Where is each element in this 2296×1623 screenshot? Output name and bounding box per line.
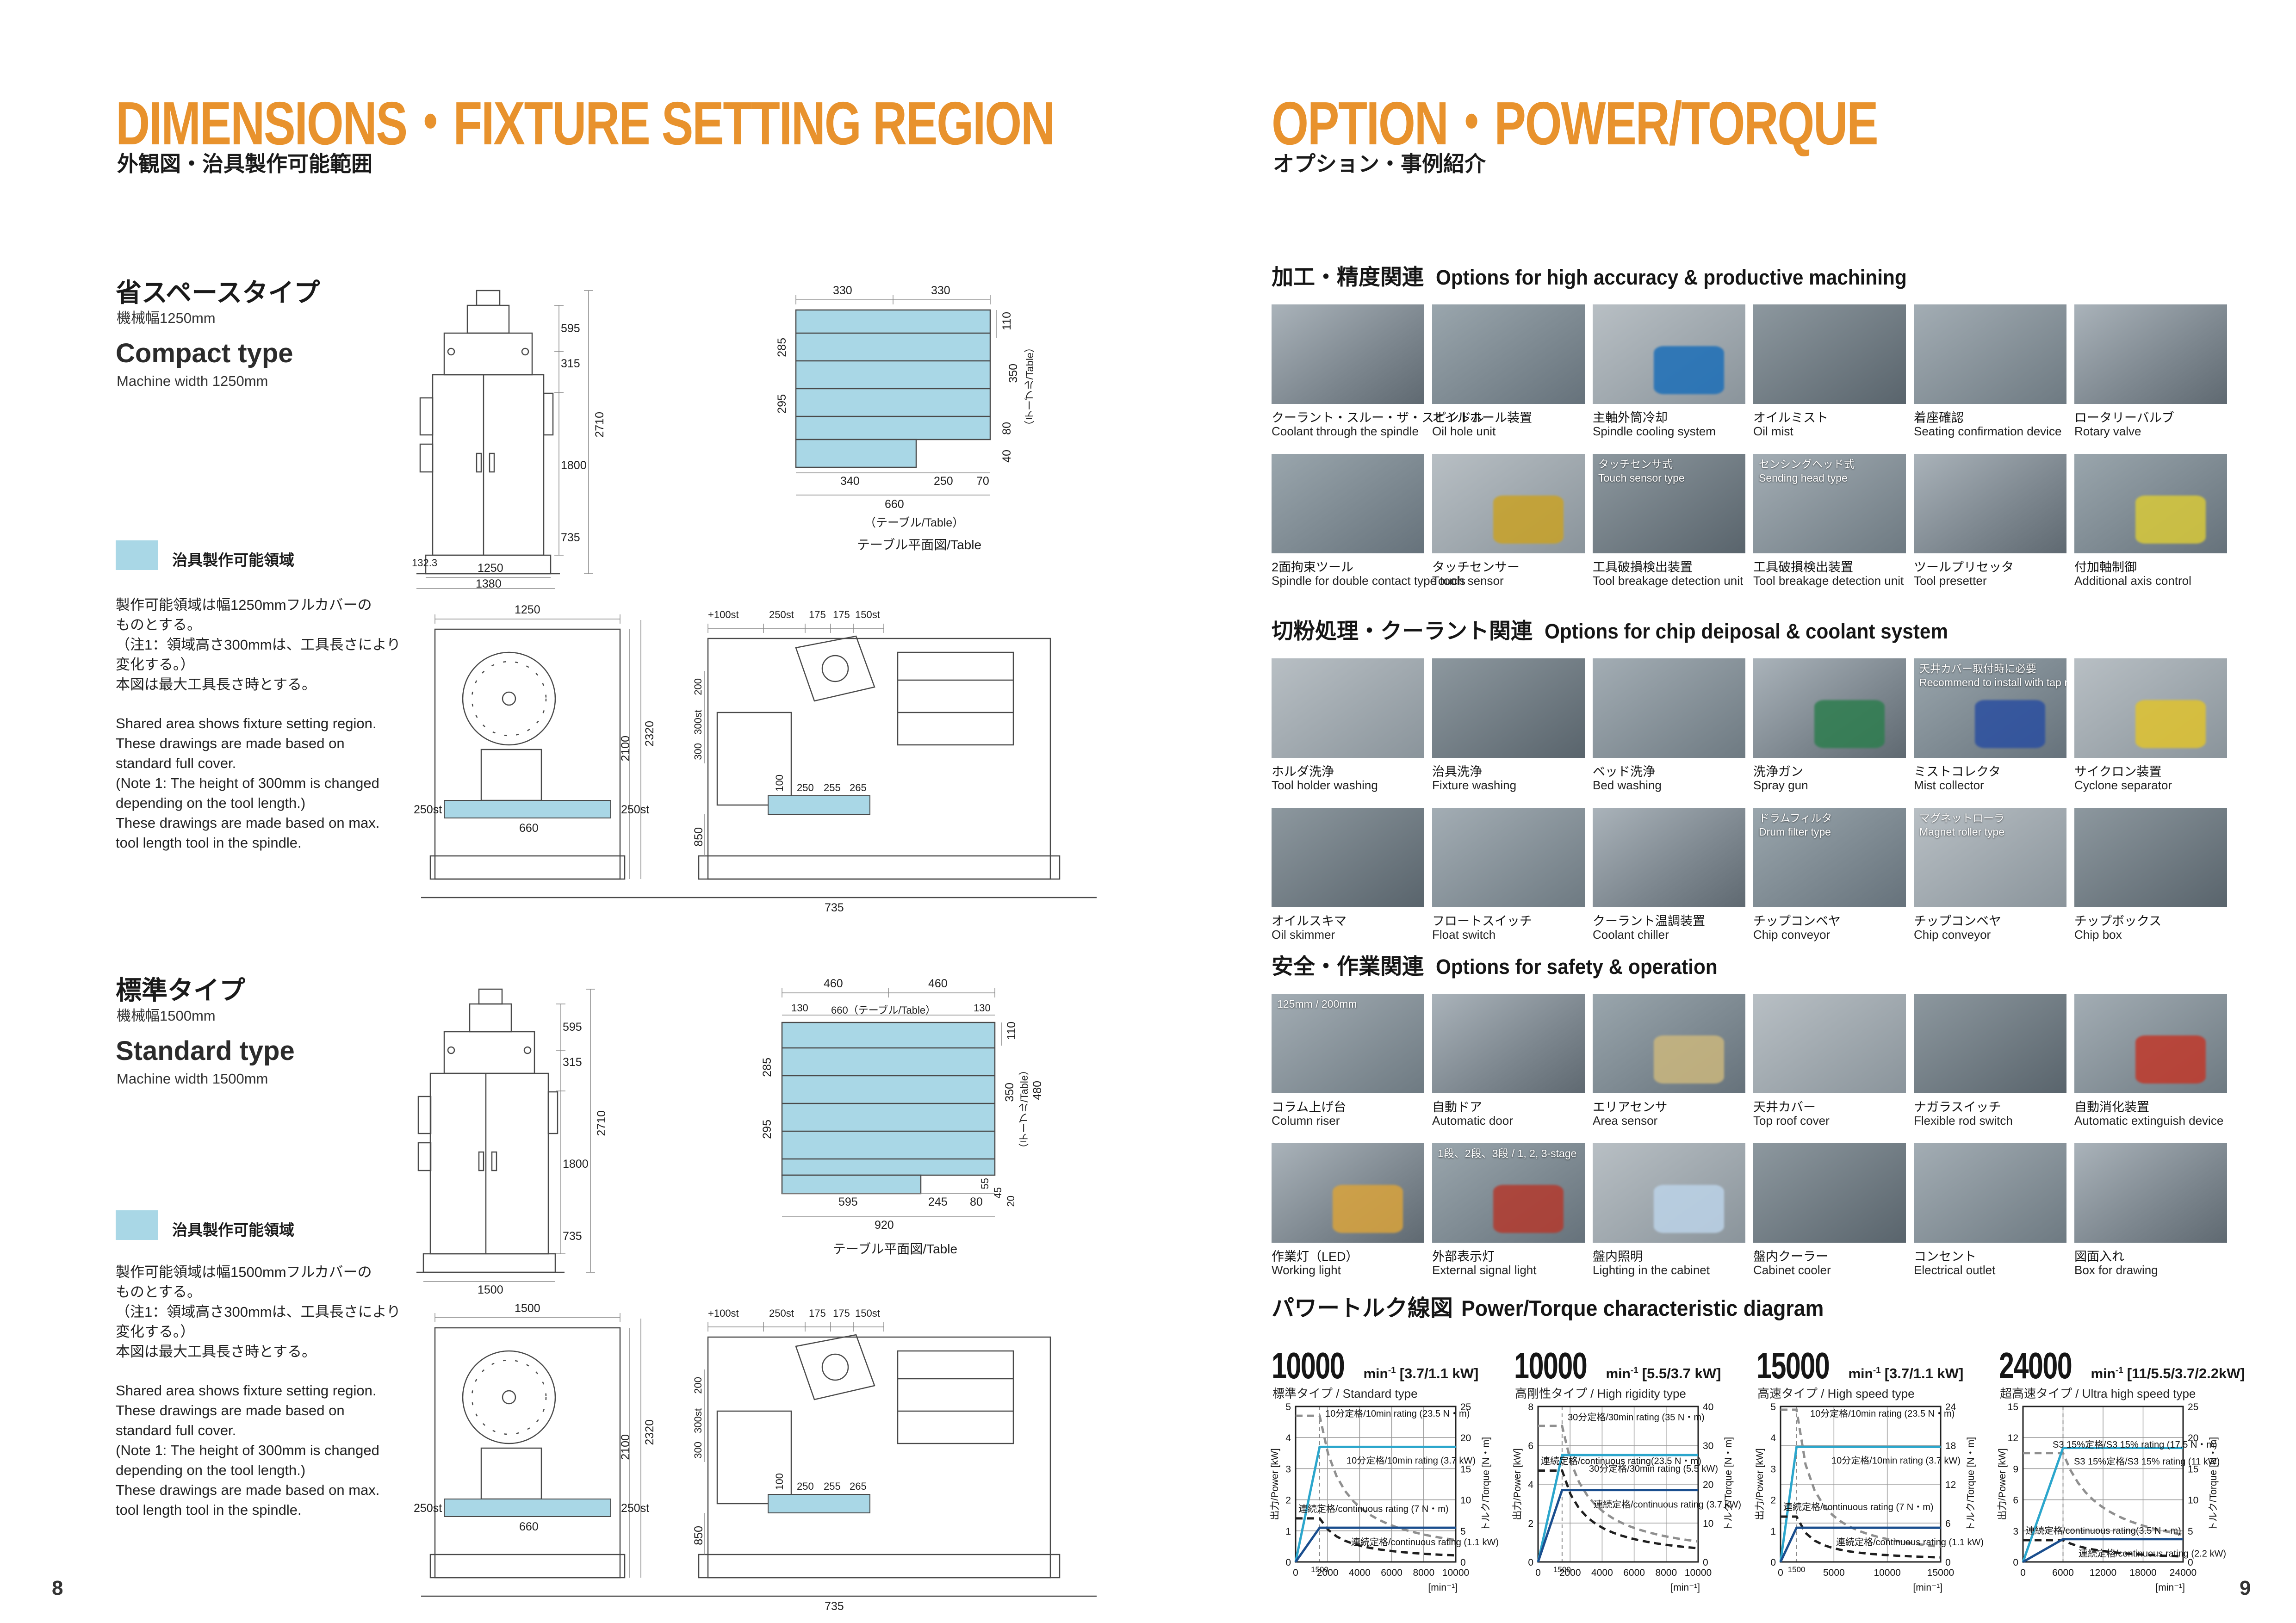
option-caption-jp: コンセント	[1914, 1246, 2066, 1264]
svg-text:5000: 5000	[1823, 1567, 1845, 1578]
photo-accent	[1493, 496, 1564, 543]
option-caption-jp: チップコンベヤ	[1753, 911, 1906, 929]
chart-plot: 30分定格/30min rating (35 N・m)30分定格/30min r…	[1514, 1400, 1748, 1599]
option-photo	[1272, 1143, 1424, 1243]
option-caption-en: Electrical outlet	[1914, 1263, 2066, 1277]
fixture-region-swatch	[116, 540, 158, 570]
svg-text:24: 24	[1945, 1402, 1956, 1412]
svg-text:連続定格/continuous rating(3.5 N・m: 連続定格/continuous rating(3.5 N・m)	[2026, 1525, 2181, 1536]
svg-text:2: 2	[1528, 1518, 1533, 1529]
dim-label: （テーブル/Table）	[1017, 1065, 1032, 1153]
option-caption-en: Tool presetter	[1914, 574, 2066, 588]
chart-plot: 10分定格/10min rating (23.5 N・m)10分定格/10min…	[1272, 1400, 1505, 1599]
svg-text:0: 0	[1528, 1557, 1533, 1568]
option-photo	[1914, 1143, 2066, 1243]
left-page-subtitle: 外観図・治具製作可能範囲	[117, 147, 372, 178]
option-caption-en: Tool holder washing	[1272, 778, 1424, 793]
dim-label: 735	[825, 901, 844, 915]
option-photo	[1914, 454, 2066, 553]
svg-text:出力/Power [kW]: 出力/Power [kW]	[1997, 1448, 2008, 1520]
option-caption-jp: エリアセンサ	[1593, 1097, 1745, 1115]
dim-label: 250	[934, 475, 953, 488]
option-caption-jp: 治具洗浄	[1432, 762, 1585, 780]
svg-text:3: 3	[2013, 1526, 2018, 1537]
option-photo	[1914, 304, 2066, 404]
option-photo	[1593, 658, 1745, 758]
dim-label: 250st	[414, 1502, 442, 1515]
option-photo	[1593, 304, 1745, 404]
dim-label: 460	[928, 977, 948, 991]
option-caption-jp: 洗浄ガン	[1753, 762, 1906, 780]
option-caption-jp: 自動消化装置	[2074, 1097, 2227, 1115]
dim-label: +100st	[708, 609, 739, 621]
dim-label: 150st	[855, 1307, 880, 1319]
svg-text:25: 25	[2188, 1402, 2198, 1412]
dim-label: 175	[809, 609, 826, 621]
svg-text:0: 0	[2188, 1557, 2193, 1568]
option-caption-en: Lighting in the cabinet	[1593, 1263, 1745, 1277]
dim-label: 2320	[643, 721, 657, 747]
option-caption-jp: オイルホール装置	[1432, 408, 1585, 426]
option-caption-jp: ツールプリセッタ	[1914, 557, 2066, 575]
dim-label: 132.3	[412, 557, 437, 569]
fixture-region-legend-label: 治具製作可能領域	[172, 1218, 294, 1240]
svg-text:30: 30	[1703, 1441, 1713, 1451]
svg-text:10000: 10000	[1442, 1567, 1469, 1578]
option-photo	[1593, 994, 1745, 1093]
dim-label: 175	[833, 609, 850, 621]
catalog-spread: { "colors":{"accent":"#E8922D","fixture_…	[0, 0, 2296, 1623]
svg-text:連続定格/continuous rating (7 N・m): 連続定格/continuous rating (7 N・m)	[1298, 1504, 1449, 1514]
dim-label: 330	[833, 284, 852, 297]
svg-text:10000: 10000	[1685, 1567, 1712, 1578]
option-caption-jp: 天井カバー	[1753, 1097, 1906, 1115]
svg-text:10分定格/10min rating (23.5 N・m): 10分定格/10min rating (23.5 N・m)	[1810, 1408, 1955, 1419]
option-caption-jp: オイルミスト	[1753, 408, 1906, 426]
svg-text:0: 0	[1770, 1557, 1776, 1568]
svg-text:10: 10	[1460, 1495, 1471, 1506]
dim-label: 660（テーブル/Table）	[831, 1002, 936, 1017]
svg-text:6000: 6000	[2052, 1567, 2074, 1578]
dim-label: 350	[1007, 364, 1020, 383]
dim-label: 1800	[563, 1158, 589, 1171]
svg-text:15: 15	[1460, 1464, 1471, 1474]
photo-overlay-label: タッチセンサ式Touch sensor type	[1598, 458, 1685, 485]
option-caption-en: Cabinet cooler	[1753, 1263, 1906, 1277]
dim-label: 250st	[621, 803, 649, 817]
option-section-header: 切粉処理・クーラント関連Options for chip deiposal & …	[1272, 613, 1974, 645]
svg-text:0: 0	[2013, 1557, 2018, 1568]
photo-overlay-label: 天井カバー取付時に必要Recommend to install with tap…	[1919, 662, 2066, 690]
svg-text:30分定格/30min rating (35 N・m): 30分定格/30min rating (35 N・m)	[1568, 1412, 1705, 1423]
option-caption-jp: 盤内照明	[1593, 1246, 1745, 1264]
photo-overlay-label: マグネットローラMagnet roller type	[1919, 811, 2004, 839]
option-photo	[2074, 304, 2227, 404]
dim-label: 920	[875, 1219, 894, 1232]
photo-accent	[1814, 700, 1885, 748]
chart-plot: 10分定格/10min rating (23.5 N・m)10分定格/10min…	[1756, 1400, 1990, 1599]
compact-title-jp: 省スペースタイプ	[116, 272, 320, 310]
dim-label: 80	[970, 1196, 983, 1209]
svg-text:15: 15	[2008, 1402, 2018, 1412]
standard-side-view-drawing: 1500 250st 660 250st 2320 2100 +100st 25…	[412, 1295, 1106, 1619]
photo-accent	[1654, 1185, 1724, 1233]
svg-text:2000: 2000	[1317, 1567, 1339, 1578]
svg-text:出力/Power [kW]: 出力/Power [kW]	[1270, 1448, 1280, 1520]
option-section-title-jp: 切粉処理・クーラント関連	[1272, 619, 1533, 643]
svg-text:24000: 24000	[2170, 1567, 2197, 1578]
option-caption-en: Seating confirmation device	[1914, 424, 2066, 439]
power-torque-title-jp: パワートルク線図	[1272, 1296, 1453, 1321]
option-photo	[1272, 658, 1424, 758]
option-caption-en: Coolant chiller	[1593, 928, 1745, 942]
svg-text:2000: 2000	[1559, 1567, 1581, 1578]
standard-notes-en: Shared area shows fixture setting region…	[116, 1381, 379, 1520]
table-plan-caption: テーブル平面図/Table	[857, 535, 981, 553]
dim-label: 300st	[692, 710, 704, 735]
standard-title-jp: 標準タイプ	[116, 970, 245, 1007]
option-photo	[1272, 454, 1424, 553]
svg-text:1: 1	[1285, 1526, 1291, 1537]
power-torque-section-header: パワートルク線図Power/Torque characteristic diag…	[1272, 1290, 1843, 1323]
option-caption-jp: オイルスキマ	[1272, 911, 1424, 929]
dim-label: 850	[692, 827, 706, 847]
option-caption-jp: 主軸外筒冷却	[1593, 408, 1745, 426]
option-caption-jp: ベッド洗浄	[1593, 762, 1745, 780]
option-caption-en: Chip conveyor	[1914, 928, 2066, 942]
dim-label: 265	[850, 782, 867, 794]
option-caption-en: External signal light	[1432, 1263, 1585, 1277]
option-photo	[1753, 658, 1906, 758]
svg-text:12: 12	[2008, 1433, 2018, 1443]
dim-label: 315	[561, 357, 580, 371]
svg-text:10: 10	[2188, 1495, 2198, 1506]
dim-label: 110	[1005, 1022, 1018, 1040]
svg-text:20: 20	[2188, 1433, 2198, 1443]
dim-label: 250st	[414, 803, 442, 817]
option-caption-jp: 外部表示灯	[1432, 1246, 1585, 1264]
option-caption-en: Area sensor	[1593, 1114, 1745, 1128]
page-number-left: 8	[52, 1577, 63, 1600]
svg-text:3: 3	[1770, 1464, 1776, 1474]
dim-label: 285	[776, 338, 789, 357]
svg-text:5: 5	[2188, 1526, 2193, 1537]
option-section-title-en: Options for high accuracy & productive m…	[1436, 266, 1907, 290]
svg-text:12: 12	[1945, 1480, 1956, 1490]
svg-text:20: 20	[1460, 1433, 1471, 1443]
option-caption-en: Mist collector	[1914, 778, 2066, 793]
option-photo	[2074, 994, 2227, 1093]
dim-label: 250st	[621, 1502, 649, 1515]
svg-text:0: 0	[2020, 1567, 2026, 1578]
dim-label: 480	[1031, 1081, 1044, 1100]
option-caption-jp: 2面拘束ツール	[1272, 557, 1424, 575]
compact-table-plan-drawing: 330 330 110 285 295 350 （テーブル/Table） 80 …	[750, 273, 1064, 560]
chart-title: 10000min-1[3.7/1.1 kW]	[1272, 1344, 1478, 1387]
standard-width-en: Machine width 1500mm	[117, 1071, 268, 1087]
svg-text:4000: 4000	[1349, 1567, 1371, 1578]
dim-label: 55	[979, 1178, 991, 1189]
option-caption-en: Top roof cover	[1753, 1114, 1906, 1128]
standard-notes-jp: 製作可能領域は幅1500mmフルカバーのものとする。（注1：領域高さ300mmは…	[116, 1262, 401, 1362]
compact-width-en: Machine width 1250mm	[117, 373, 268, 390]
option-caption-jp: チップコンベヤ	[1914, 911, 2066, 929]
dim-label: 250	[797, 1481, 814, 1493]
svg-text:5: 5	[1285, 1402, 1291, 1412]
dim-label: 2320	[643, 1419, 657, 1445]
svg-text:12000: 12000	[2090, 1567, 2116, 1578]
svg-text:15000: 15000	[1927, 1567, 1954, 1578]
option-caption-en: Oil skimmer	[1272, 928, 1424, 942]
dim-label: 660	[519, 822, 539, 835]
svg-text:6: 6	[1528, 1441, 1533, 1451]
svg-text:6000: 6000	[1623, 1567, 1645, 1578]
dim-label: 460	[824, 977, 843, 991]
option-photo	[1432, 454, 1585, 553]
option-caption-jp: 工具破損検出装置	[1753, 557, 1906, 575]
svg-text:連続定格/continuous rating (1.1 kW: 連続定格/continuous rating (1.1 kW)	[1351, 1537, 1499, 1548]
option-photo	[1753, 1143, 1906, 1243]
dim-label: 1250	[478, 562, 503, 575]
svg-text:トルク/Torque [N・m]: トルク/Torque [N・m]	[1481, 1437, 1491, 1531]
dim-label: 300st	[692, 1408, 704, 1433]
option-caption-en: Cyclone separator	[2074, 778, 2227, 793]
dim-label: 2710	[593, 412, 607, 438]
option-caption-en: Automatic door	[1432, 1114, 1585, 1128]
svg-text:4000: 4000	[1591, 1567, 1613, 1578]
svg-text:トルク/Torque [N・m]: トルク/Torque [N・m]	[1966, 1437, 1976, 1531]
dim-label: 735	[563, 1230, 582, 1243]
option-caption-en: Spray gun	[1753, 778, 1906, 793]
compact-side-view-drawing: 1250 250st 660 250st 2320 2100 +100st 25…	[412, 597, 1106, 921]
svg-text:5: 5	[1460, 1526, 1466, 1537]
dim-label: 2100	[619, 736, 633, 762]
dim-label: 735	[825, 1600, 844, 1613]
option-photo: ドラムフィルタDrum filter type	[1753, 808, 1906, 907]
option-photo	[1432, 808, 1585, 907]
svg-text:5: 5	[1770, 1402, 1776, 1412]
option-caption-en: Spindle cooling system	[1593, 424, 1745, 439]
option-photo: 1段、2段、3段 / 1, 2, 3-stage	[1432, 1143, 1585, 1243]
option-section-title-en: Options for chip deiposal & coolant syst…	[1545, 619, 1948, 644]
dim-label: 250st	[769, 609, 794, 621]
dim-label: 850	[692, 1526, 706, 1545]
option-caption-en: Additional axis control	[2074, 574, 2227, 588]
svg-text:2: 2	[1285, 1495, 1291, 1506]
chart-subtitle: 超高速タイプ / Ultra high speed type	[2000, 1384, 2196, 1401]
option-section-header: 加工・精度関連Options for high accuracy & produ…	[1272, 259, 1937, 291]
svg-text:0: 0	[1778, 1567, 1783, 1578]
svg-text:8: 8	[1528, 1402, 1533, 1412]
dim-label: 315	[563, 1056, 582, 1069]
option-caption-en: Touch sensor	[1432, 574, 1585, 588]
photo-accent	[1333, 1185, 1403, 1233]
dim-label: 40	[1000, 450, 1014, 463]
svg-text:40: 40	[1703, 1402, 1713, 1412]
option-photo: 125mm / 200mm	[1272, 994, 1424, 1093]
photo-accent	[2135, 700, 2206, 748]
dim-label: 1250	[515, 603, 540, 617]
dim-label: 1800	[561, 459, 587, 472]
dim-label: 20	[1005, 1196, 1017, 1207]
svg-text:[min⁻¹]: [min⁻¹]	[1428, 1582, 1458, 1593]
svg-text:0: 0	[1703, 1557, 1708, 1568]
svg-text:連続定格/continuous rating (2.2 kW: 連続定格/continuous rating (2.2 kW)	[2079, 1549, 2226, 1559]
option-caption-jp: 作業灯（LED）	[1272, 1246, 1424, 1264]
dim-label: +100st	[708, 1307, 739, 1319]
photo-overlay-label: ドラムフィルタDrum filter type	[1759, 811, 1832, 839]
svg-text:10分定格/10min rating (23.5 N・m): 10分定格/10min rating (23.5 N・m)	[1325, 1408, 1470, 1419]
chart-subtitle: 高剛性タイプ / High rigidity type	[1515, 1384, 1686, 1401]
dim-label: 595	[563, 1021, 582, 1034]
option-caption-jp: 工具破損検出装置	[1593, 557, 1745, 575]
standard-title-en: Standard type	[116, 1035, 295, 1066]
table-plan-caption: テーブル平面図/Table	[833, 1239, 957, 1258]
svg-text:1500: 1500	[1788, 1565, 1806, 1574]
dim-label: 110	[1000, 312, 1014, 330]
svg-text:10分定格/10min rating (3.7 kW): 10分定格/10min rating (3.7 kW)	[1347, 1455, 1476, 1466]
option-photo	[1914, 994, 2066, 1093]
option-caption-en: Chip conveyor	[1753, 928, 1906, 942]
photo-accent	[1654, 346, 1724, 394]
option-caption-en: Rotary valve	[2074, 424, 2227, 439]
option-caption-en: Flexible rod switch	[1914, 1114, 2066, 1128]
svg-text:6000: 6000	[1381, 1567, 1402, 1578]
svg-text:0: 0	[1285, 1557, 1291, 1568]
dim-label: 660	[885, 498, 904, 511]
option-caption-en: Fixture washing	[1432, 778, 1585, 793]
photo-accent	[2135, 496, 2206, 543]
fixture-region-legend-label: 治具製作可能領域	[172, 548, 294, 570]
dim-label: 2100	[619, 1434, 633, 1460]
svg-text:4: 4	[1285, 1433, 1291, 1443]
dim-label: 295	[776, 394, 789, 414]
dim-label: 200	[692, 678, 704, 695]
svg-text:トルク/Torque [N・m]: トルク/Torque [N・m]	[1723, 1437, 1734, 1531]
compact-width-jp: 機械幅1250mm	[117, 306, 216, 327]
option-photo	[1432, 658, 1585, 758]
chart-subtitle: 標準タイプ / Standard type	[1272, 1384, 1418, 1401]
option-photo	[1753, 304, 1906, 404]
chart-subtitle: 高速タイプ / High speed type	[1757, 1384, 1915, 1401]
option-caption-en: Oil mist	[1753, 424, 1906, 439]
photo-overlay-label: センシングヘッド式Sending head type	[1759, 458, 1855, 485]
photo-accent	[2135, 1035, 2206, 1083]
option-photo: 天井カバー取付時に必要Recommend to install with tap…	[1914, 658, 2066, 758]
chart-title: 15000min-1[3.7/1.1 kW]	[1756, 1344, 1963, 1387]
dim-label: 175	[833, 1307, 850, 1319]
option-caption-jp: チップボックス	[2074, 911, 2227, 929]
option-photo	[2074, 1143, 2227, 1243]
dim-label: 100	[774, 774, 786, 792]
dim-label: 100	[774, 1473, 786, 1490]
option-caption-jp: ホルダ洗浄	[1272, 762, 1424, 780]
svg-text:連続定格/continuous rating (1.1 kW: 連続定格/continuous rating (1.1 kW)	[1836, 1537, 1984, 1548]
chart-plot: S3 15%定格/S3 15% rating (17.5 N・m)S3 15%定…	[1999, 1400, 2233, 1599]
svg-text:9: 9	[2013, 1464, 2018, 1474]
dim-label: 285	[761, 1058, 774, 1077]
dim-label: 250st	[769, 1307, 794, 1319]
svg-text:連続定格/continuous rating(23.5 N・: 連続定格/continuous rating(23.5 N・m)	[1541, 1456, 1701, 1467]
page-number-right: 9	[2240, 1577, 2251, 1600]
option-photo	[2074, 658, 2227, 758]
dim-label: 1380	[476, 577, 502, 591]
dim-label: 255	[824, 1481, 841, 1493]
dim-label: 80	[1000, 422, 1014, 435]
option-caption-jp: ミストコレクタ	[1914, 762, 2066, 780]
svg-text:1: 1	[1770, 1526, 1776, 1537]
svg-text:8000: 8000	[1413, 1567, 1434, 1578]
option-photo	[2074, 808, 2227, 907]
photo-overlay-label: 1段、2段、3段 / 1, 2, 3-stage	[1438, 1147, 1576, 1161]
svg-text:25: 25	[1460, 1402, 1471, 1412]
compact-title-en: Compact type	[116, 338, 293, 369]
svg-text:[min⁻¹]: [min⁻¹]	[1913, 1582, 1942, 1593]
dim-label: 200	[692, 1377, 704, 1394]
option-caption-en: Oil hole unit	[1432, 424, 1585, 439]
svg-text:連続定格/continuous rating (7 N・m): 連続定格/continuous rating (7 N・m)	[1783, 1502, 1934, 1512]
dim-label: 245	[928, 1196, 948, 1209]
option-caption-jp: クーラント温調装置	[1593, 911, 1745, 929]
option-caption-en: Spindle for double contact type tools	[1272, 574, 1424, 588]
compact-front-view-drawing: 595 315 2710 1800 735 132.3 1250 1380	[412, 278, 615, 592]
dim-label: 300	[692, 743, 704, 760]
svg-text:10分定格/10min rating (3.7 kW): 10分定格/10min rating (3.7 kW)	[1831, 1455, 1961, 1466]
option-caption-en: Automatic extinguish device	[2074, 1114, 2227, 1128]
option-photo	[1432, 304, 1585, 404]
standard-table-plan-drawing: 460 460 130 660（テーブル/Table） 130 110 285 …	[722, 967, 1046, 1258]
chart-series-line	[1781, 1410, 1941, 1547]
svg-text:出力/Power [kW]: 出力/Power [kW]	[1512, 1448, 1523, 1520]
fixture-region-swatch	[116, 1210, 158, 1240]
dim-label: 1500	[515, 1302, 540, 1315]
option-section-title-jp: 安全・作業関連	[1272, 954, 1424, 979]
dim-label: 265	[850, 1481, 867, 1493]
svg-text:トルク/Torque [N・m]: トルク/Torque [N・m]	[2208, 1437, 2219, 1531]
svg-text:6: 6	[1945, 1518, 1951, 1529]
option-caption-en: Float switch	[1432, 928, 1585, 942]
photo-accent	[1975, 700, 2045, 748]
dim-label: 2710	[595, 1110, 608, 1136]
svg-text:10000: 10000	[1874, 1567, 1900, 1578]
svg-text:18: 18	[1945, 1441, 1956, 1451]
option-photo	[1753, 994, 1906, 1093]
right-page-subtitle: オプション・事例紹介	[1273, 147, 1486, 178]
dim-label: 340	[840, 475, 860, 488]
svg-text:0: 0	[1293, 1567, 1298, 1578]
option-section-title-jp: 加工・精度関連	[1272, 265, 1424, 289]
option-caption-jp: 図面入れ	[2074, 1246, 2227, 1264]
svg-text:2: 2	[1770, 1495, 1776, 1506]
svg-text:4: 4	[1770, 1433, 1776, 1443]
standard-front-view-drawing: 595 315 2710 1800 735 1500	[412, 976, 615, 1291]
chart-title: 24000min-1[11/5.5/3.7/2.2kW]	[1999, 1344, 2245, 1387]
option-caption-jp: 付加軸制御	[2074, 557, 2227, 575]
option-photo	[1432, 994, 1585, 1093]
dim-label: 295	[761, 1120, 774, 1139]
dim-label: 70	[976, 475, 989, 488]
option-caption-en: Working light	[1272, 1263, 1424, 1277]
dim-label: 595	[561, 322, 580, 335]
option-photo	[2074, 454, 2227, 553]
dim-label: 595	[838, 1196, 858, 1209]
option-caption-en: Bed washing	[1593, 778, 1745, 793]
chart-series-line	[1296, 1518, 1456, 1555]
chart-title: 10000min-1[5.5/3.7 kW]	[1514, 1344, 1721, 1387]
option-caption-jp: 着座確認	[1914, 408, 2066, 426]
svg-text:18000: 18000	[2129, 1567, 2156, 1578]
option-caption-en: Column riser	[1272, 1114, 1424, 1128]
